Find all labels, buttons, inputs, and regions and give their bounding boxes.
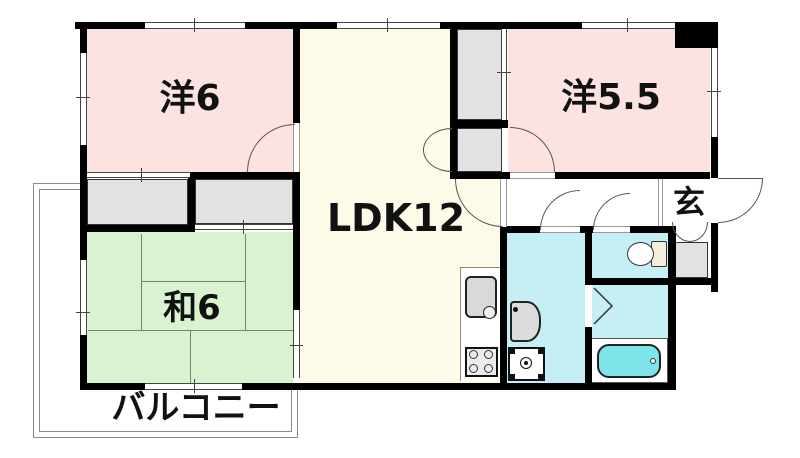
closet-sliding-door: [501, 29, 507, 120]
washing-machine-drum-dot: [524, 361, 528, 365]
balcony-outline: [33, 183, 34, 438]
sliding-tick: [141, 168, 142, 182]
room-label-ldk: LDK12: [327, 199, 465, 237]
balcony-outline: [39, 189, 80, 190]
wall: [711, 137, 718, 178]
room-label-entrance: 玄: [673, 186, 705, 218]
wall: [440, 22, 582, 29]
window-tick: [76, 312, 90, 313]
wall: [80, 22, 87, 53]
window: [582, 22, 675, 29]
window: [337, 22, 440, 29]
washing-machine-corner: [538, 374, 543, 379]
wall: [450, 120, 508, 128]
window: [80, 260, 87, 335]
partition-japanese6-ldk: [293, 310, 300, 378]
room-label-japanese6: 和6: [163, 291, 221, 325]
tatami-line: [245, 234, 246, 330]
wall: [245, 22, 337, 29]
sliding-tick: [290, 345, 303, 346]
bathtub-drain-icon: [650, 358, 656, 364]
stove-burner-icon: [469, 350, 478, 359]
balcony-outline: [33, 183, 80, 184]
wall: [500, 172, 507, 179]
window-tick: [387, 18, 388, 32]
window-tick: [194, 18, 195, 32]
wall: [293, 172, 300, 310]
stove-burner-icon: [469, 364, 478, 373]
wall: [190, 172, 300, 179]
wall: [293, 22, 300, 123]
closet-sliding-door: [195, 224, 293, 230]
doorway-entrance: [711, 178, 718, 223]
wall: [585, 327, 592, 383]
genkan-step-line: [658, 179, 663, 226]
window: [80, 53, 87, 145]
sink-faucet-icon: [483, 306, 496, 319]
closet-upper: [457, 29, 502, 120]
wall: [500, 227, 507, 383]
window: [711, 48, 718, 137]
balcony-outline: [297, 390, 298, 438]
wall: [188, 172, 195, 232]
tatami-line: [190, 330, 191, 383]
window: [145, 22, 245, 29]
closet-japanese6: [195, 179, 293, 224]
balcony-outline: [39, 431, 292, 432]
window-tick: [76, 97, 90, 98]
floor-plan: 洋6 洋5.5 LDK12 和6 バルコニー 玄: [0, 0, 800, 458]
closet-western6: [87, 179, 188, 225]
balcony-outline: [33, 437, 298, 438]
shoe-cabinet-door-arc: [690, 222, 708, 242]
tatami-line: [141, 281, 245, 282]
room-label-balcony: バルコニー: [111, 391, 280, 425]
tatami-line: [141, 234, 142, 330]
washing-machine-corner: [510, 374, 515, 379]
washing-machine-corner: [538, 349, 543, 354]
wall: [500, 226, 540, 233]
window-tick: [627, 18, 628, 32]
washbasin-faucet-icon: [513, 307, 518, 312]
washing-machine-corner: [510, 349, 515, 354]
wall: [668, 226, 676, 390]
stove-burner-icon: [484, 364, 493, 373]
sliding-tick: [497, 72, 511, 73]
wall: [80, 225, 195, 232]
wall: [630, 226, 672, 233]
room-label-western55: 洋5.5: [561, 80, 661, 116]
balcony-outline: [39, 189, 40, 432]
doorway: [510, 172, 555, 179]
wall: [675, 22, 718, 48]
door-arc-toilet: [593, 193, 630, 230]
balcony-outline: [291, 390, 292, 432]
window-tick: [707, 91, 721, 92]
folding-door-icon: [590, 284, 616, 330]
door-arc-washroom: [540, 190, 580, 230]
room-label-western6: 洋6: [159, 81, 220, 117]
closet-lower: [457, 128, 502, 172]
wall: [580, 226, 593, 233]
wall: [555, 172, 710, 179]
door-arc-entrance: [718, 178, 763, 223]
wall: [80, 145, 87, 260]
stove-burner-icon: [484, 350, 493, 359]
toilet-bowl: [627, 242, 654, 266]
sliding-tick: [243, 220, 244, 234]
closet-sliding-door: [87, 172, 190, 178]
shoe-cabinet: [675, 242, 708, 278]
wall: [242, 383, 676, 390]
wall: [80, 335, 87, 390]
